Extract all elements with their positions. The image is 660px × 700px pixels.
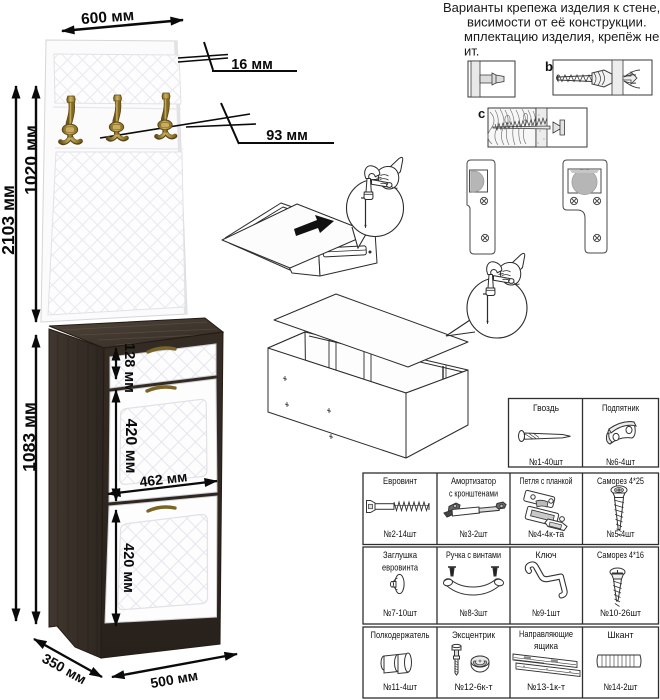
svg-text:ит.: ит. [464,44,479,59]
svg-text:№9-1шт: №9-1шт [532,608,560,619]
svg-text:Гвоздь: Гвоздь [533,403,559,414]
svg-text:Подпятник: Подпятник [602,403,640,414]
svg-text:висимости от её конструкции.: висимости от её конструкции. [467,15,647,30]
svg-text:420 мм: 420 мм [120,543,136,593]
svg-text:с кронштенами: с кронштенами [449,489,498,500]
svg-text:№5-4шт: №5-4шт [607,529,635,540]
svg-text:93 мм: 93 мм [266,128,308,144]
svg-text:1020 мм: 1020 мм [21,125,41,195]
svg-text:16 мм: 16 мм [231,57,273,73]
svg-text:Евровинт: Евровинт [383,476,418,487]
svg-text:№11-4шт: №11-4шт [383,682,418,693]
svg-text:Саморез 4*25: Саморез 4*25 [597,476,644,487]
svg-text:1083 мм: 1083 мм [19,402,39,472]
svg-text:№10-26шт: №10-26шт [600,608,642,619]
svg-text:№14-2шт: №14-2шт [604,682,639,693]
svg-text:Заглушка: Заглушка [383,550,418,561]
svg-text:№2-14шт: №2-14шт [384,529,418,540]
svg-text:Варианты крепежа изделия к сте: Варианты крепежа изделия к стене, [443,0,660,15]
svg-text:№13-1к-т: №13-1к-т [527,682,566,693]
svg-text:Полкодержатель: Полкодержатель [371,630,430,641]
svg-text:№12-6к-т: №12-6к-т [455,682,494,693]
svg-text:Направляющие: Направляющие [519,629,573,640]
svg-text:№8-3шт: №8-3шт [460,608,488,619]
svg-text:№1-40шт: №1-40шт [529,457,564,468]
svg-text:Шкант: Шкант [608,630,635,641]
svg-text:128 мм: 128 мм [121,343,137,393]
svg-text:420 мм: 420 мм [122,419,139,474]
svg-text:№4-4к-та: №4-4к-та [528,529,565,540]
svg-text:ящика: ящика [534,641,559,652]
svg-text:Амортизатор: Амортизатор [451,476,496,487]
svg-text:мплектацию изделия, крепёж не: мплектацию изделия, крепёж не [464,29,659,44]
svg-text:c: c [478,106,485,121]
svg-text:Эксцентрик: Эксцентрик [452,630,496,641]
svg-text:Ключ: Ключ [536,550,557,561]
svg-text:№7-10шт: №7-10шт [383,608,418,619]
svg-text:евровинта: евровинта [382,563,419,574]
svg-text:2103 мм: 2103 мм [0,185,18,255]
svg-text:Петля с планкой: Петля с планкой [520,476,573,487]
svg-text:b: b [545,59,553,74]
svg-text:Саморез 4*16: Саморез 4*16 [597,550,644,561]
svg-text:№6-4шт: №6-4шт [606,457,636,468]
svg-text:Ручка с винтами: Ручка с винтами [446,550,501,561]
svg-text:№3-2шт: №3-2шт [460,529,488,540]
